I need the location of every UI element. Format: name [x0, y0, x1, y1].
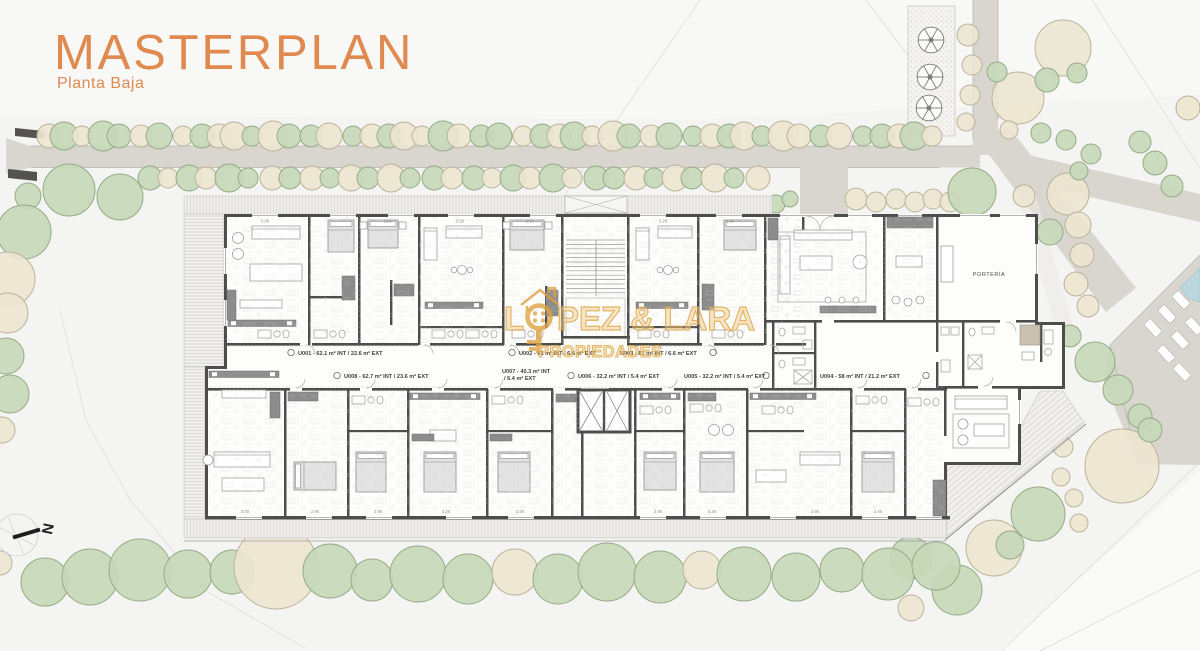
svg-text:PORTERÍA: PORTERÍA	[973, 271, 1006, 278]
svg-text:2.90: 2.90	[374, 509, 383, 514]
svg-text:MASTERPLAN: MASTERPLAN	[54, 26, 414, 80]
svg-text:2.90: 2.90	[516, 509, 525, 514]
svg-text:U001 - 62.1 m² INT / 22.6 m² E: U001 - 62.1 m² INT / 22.6 m² EXT	[298, 350, 383, 357]
svg-text:2.40: 2.40	[874, 509, 883, 514]
svg-text:2.90: 2.90	[311, 509, 320, 514]
svg-text:3.90: 3.90	[261, 219, 270, 224]
svg-text:2.90: 2.90	[526, 219, 535, 224]
svg-text:2.90: 2.90	[384, 219, 393, 224]
svg-text:U007 - 40.3 m² INT: U007 - 40.3 m² INT	[502, 368, 551, 375]
svg-text:PEZ & LARA: PEZ & LARA	[557, 300, 755, 337]
svg-text:3.20: 3.20	[442, 509, 451, 514]
svg-text:/ 6.4 m² EXT: / 6.4 m² EXT	[504, 375, 536, 382]
svg-text:Planta Baja: Planta Baja	[57, 75, 144, 92]
svg-text:3.98: 3.98	[726, 219, 735, 224]
svg-text:U004 - 58 m² INT / 21.2 m² EXT: U004 - 58 m² INT / 21.2 m² EXT	[820, 373, 900, 380]
svg-text:U008 - 62.7 m² INT / 23.6 m² E: U008 - 62.7 m² INT / 23.6 m² EXT	[344, 373, 429, 380]
svg-text:2.90: 2.90	[456, 219, 465, 224]
svg-text:U005 - 32.2 m² INT / 5.4 m² EX: U005 - 32.2 m² INT / 5.4 m² EXT	[684, 373, 766, 380]
svg-text:3.00: 3.00	[241, 509, 250, 514]
svg-text:3.28: 3.28	[659, 219, 668, 224]
svg-text:2.90: 2.90	[654, 509, 663, 514]
svg-text:L: L	[504, 300, 524, 337]
svg-text:PROPIEDADES: PROPIEDADES	[538, 343, 663, 361]
svg-text:2.90: 2.90	[811, 509, 820, 514]
svg-text:U006 - 32.2 m² INT / 5.4 m² EX: U006 - 32.2 m² INT / 5.4 m² EXT	[578, 373, 660, 380]
svg-text:5.20: 5.20	[708, 509, 717, 514]
